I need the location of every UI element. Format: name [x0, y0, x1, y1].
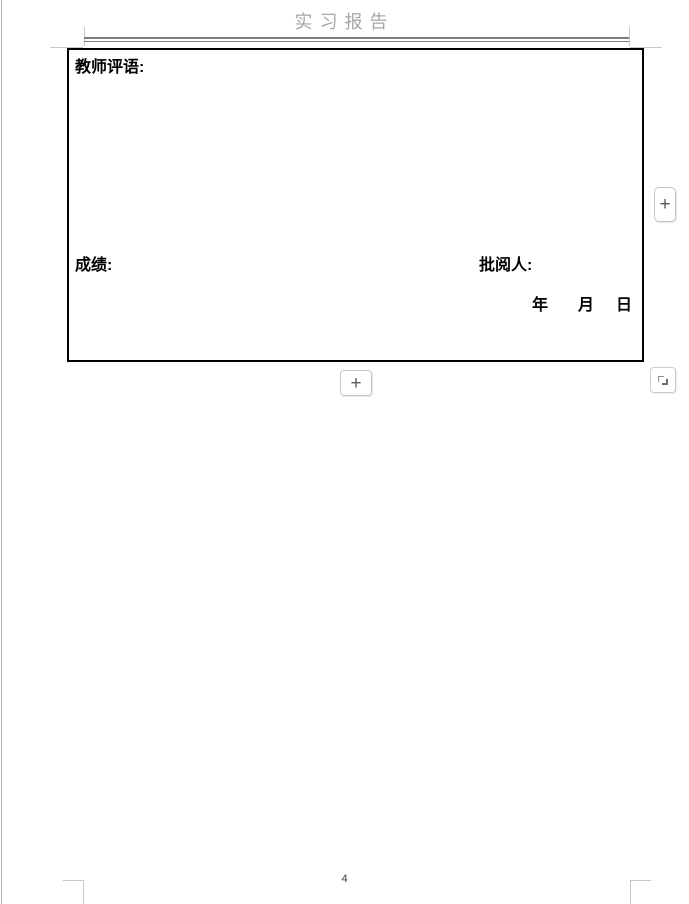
plus-icon: +: [659, 195, 670, 214]
corner-resize-icon: [662, 379, 668, 385]
header-divider-thin-line: [84, 41, 629, 42]
header-margin-tick-right: [629, 27, 630, 46]
page-edge-line: [1, 0, 2, 904]
teacher-review-table[interactable]: 教师评语: 成绩: 批阅人: 年 月 日: [67, 48, 644, 362]
date-month-label: 月: [578, 291, 594, 315]
date-year-label: 年: [532, 291, 548, 315]
date-day-label: 日: [616, 291, 632, 315]
reviewer-label: 批阅人:: [479, 251, 532, 275]
page-header-title: 实习报告: [0, 8, 689, 34]
header-divider-thick-line: [84, 37, 629, 39]
add-row-button[interactable]: +: [340, 370, 372, 396]
grade-label: 成绩:: [75, 251, 112, 275]
teacher-comment-label: 教师评语:: [75, 53, 144, 77]
plus-icon: +: [350, 374, 361, 393]
table-resize-handle-button[interactable]: [650, 367, 676, 393]
add-column-button[interactable]: +: [654, 187, 676, 222]
document-page: 实习报告 教师评语: 成绩: 批阅人: 年 月 日 + + 4: [0, 0, 689, 904]
footer-page-number: 4: [0, 873, 689, 885]
